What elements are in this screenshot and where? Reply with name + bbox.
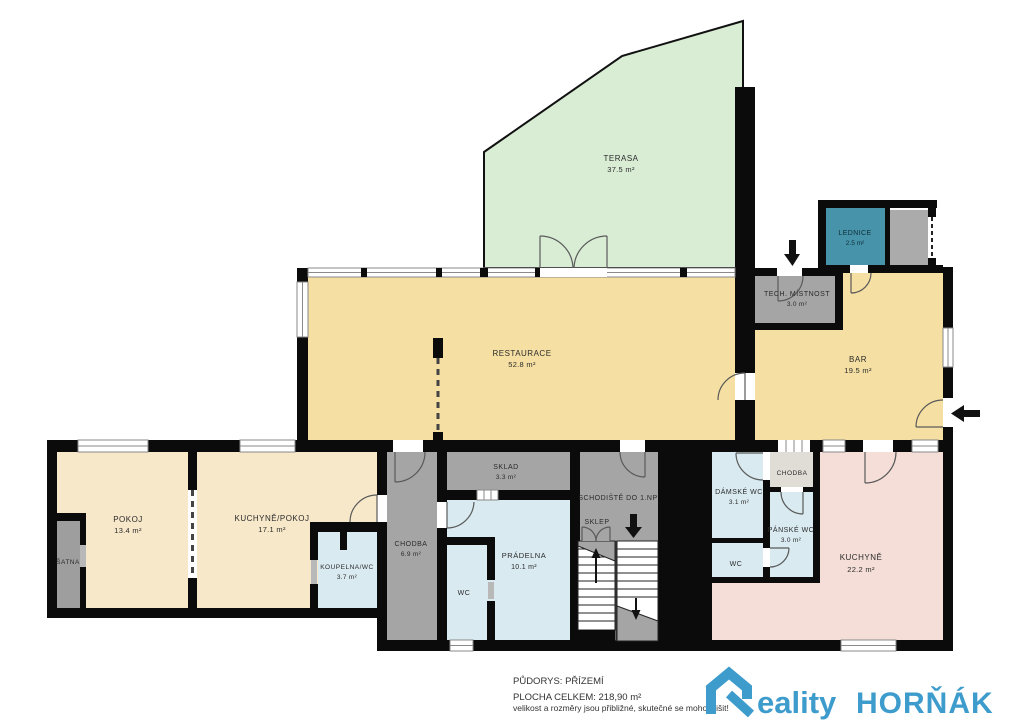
room-sklad bbox=[447, 452, 570, 490]
label-restaurace: RESTAURACE bbox=[492, 349, 551, 358]
label-kuchyne-pokoj: KUCHYNĚ/POKOJ bbox=[235, 514, 310, 523]
label-bar-area: 19.5 m² bbox=[844, 366, 872, 375]
label-terasa-area: 37.5 m² bbox=[607, 165, 635, 174]
room-restaurace bbox=[308, 277, 735, 440]
label-damske-wc: DÁMSKÉ WC bbox=[715, 487, 763, 496]
label-damske-wc-area: 3.1 m² bbox=[729, 499, 750, 506]
label-schodiste: SCHODIŠTĚ DO 1.NP bbox=[578, 493, 657, 502]
label-koupelna-wc-area: 3.7 m² bbox=[337, 574, 358, 581]
label-kuchyne-pokoj-area: 17.1 m² bbox=[258, 525, 286, 534]
logo-text-hornak: HORŇÁK bbox=[856, 686, 994, 720]
label-pradelna-area: 10.1 m² bbox=[511, 564, 537, 571]
label-chodba-left: CHODBA bbox=[395, 541, 428, 548]
room-storage-niche bbox=[890, 210, 928, 265]
plan-title: PŮDORYS: PŘÍZEMÍ bbox=[513, 675, 604, 687]
bar-entry-arrow-icon bbox=[951, 405, 980, 422]
room-tech-mistnost bbox=[755, 276, 835, 323]
label-restaurace-area: 52.8 m² bbox=[508, 360, 536, 369]
label-terasa: TERASA bbox=[603, 154, 638, 163]
terrace-area bbox=[484, 21, 743, 268]
label-chodba-left-area: 6.9 m² bbox=[401, 551, 422, 558]
floor-plan-page: TERASA 37.5 m² RESTAURACE 52.8 m² BAR 19… bbox=[0, 0, 1024, 724]
label-chodba-right: CHODBA bbox=[777, 470, 808, 477]
total-area: PLOCHA CELKEM: 218,90 m² bbox=[513, 692, 641, 703]
label-sklep: SKLEP bbox=[584, 519, 609, 526]
agency-logo: eality HORŇÁK bbox=[711, 673, 994, 720]
label-tech-mistnost-area: 3.0 m² bbox=[787, 301, 808, 308]
label-tech-mistnost: TECH. MÍSTNOST bbox=[764, 289, 830, 298]
room-wc-right bbox=[712, 543, 763, 577]
floor-plan-drawing: TERASA 37.5 m² RESTAURACE 52.8 m² BAR 19… bbox=[0, 0, 1024, 724]
label-sklad: SKLAD bbox=[493, 464, 518, 471]
label-satna: ŠATNA bbox=[56, 557, 80, 566]
staircase bbox=[578, 527, 658, 641]
label-pokoj-area: 13.4 m² bbox=[114, 526, 142, 535]
room-panske-wc bbox=[770, 492, 813, 577]
label-pokoj: POKOJ bbox=[113, 515, 143, 524]
tech-entry-arrow-icon bbox=[784, 240, 800, 266]
footer: PŮDORYS: PŘÍZEMÍ PLOCHA CELKEM: 218,90 m… bbox=[513, 675, 729, 713]
label-pradelna: PRÁDELNA bbox=[502, 551, 546, 560]
label-lednice: LEDNICE bbox=[838, 230, 871, 237]
label-kuchyne: KUCHYNĚ bbox=[840, 553, 883, 562]
logo-text-reality: eality bbox=[757, 685, 837, 720]
label-wc-right: WC bbox=[730, 561, 743, 568]
label-sklad-area: 3.3 m² bbox=[496, 474, 517, 481]
label-bar: BAR bbox=[849, 355, 867, 364]
label-kuchyne-area: 22.2 m² bbox=[847, 565, 875, 574]
disclaimer: velikost a rozměry jsou přibližné, skute… bbox=[513, 703, 729, 713]
label-lednice-area: 2.5 m² bbox=[846, 240, 865, 247]
label-panske-wc-area: 3.0 m² bbox=[781, 537, 802, 544]
label-wc-left: WC bbox=[458, 590, 471, 597]
label-koupelna-wc: KOUPELNA/WC bbox=[320, 564, 374, 571]
label-panske-wc: PÁNSKÉ WC bbox=[768, 525, 815, 534]
